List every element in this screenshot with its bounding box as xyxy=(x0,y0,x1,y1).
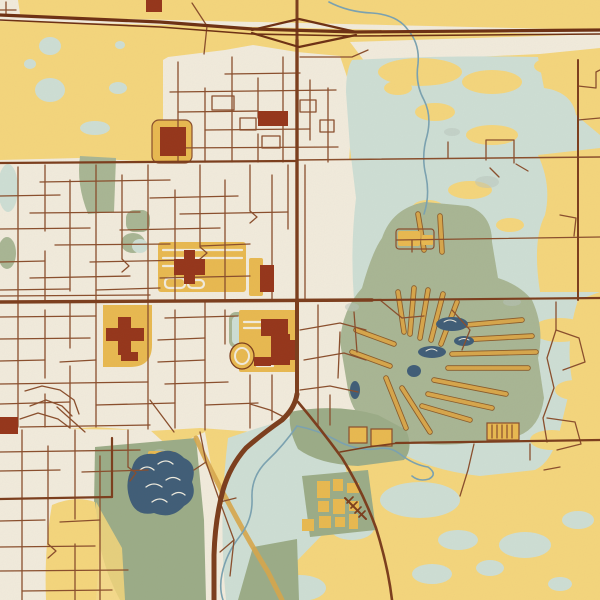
paper-grain-overlay xyxy=(0,0,600,600)
map-print xyxy=(0,0,600,600)
map-canvas xyxy=(0,0,600,600)
